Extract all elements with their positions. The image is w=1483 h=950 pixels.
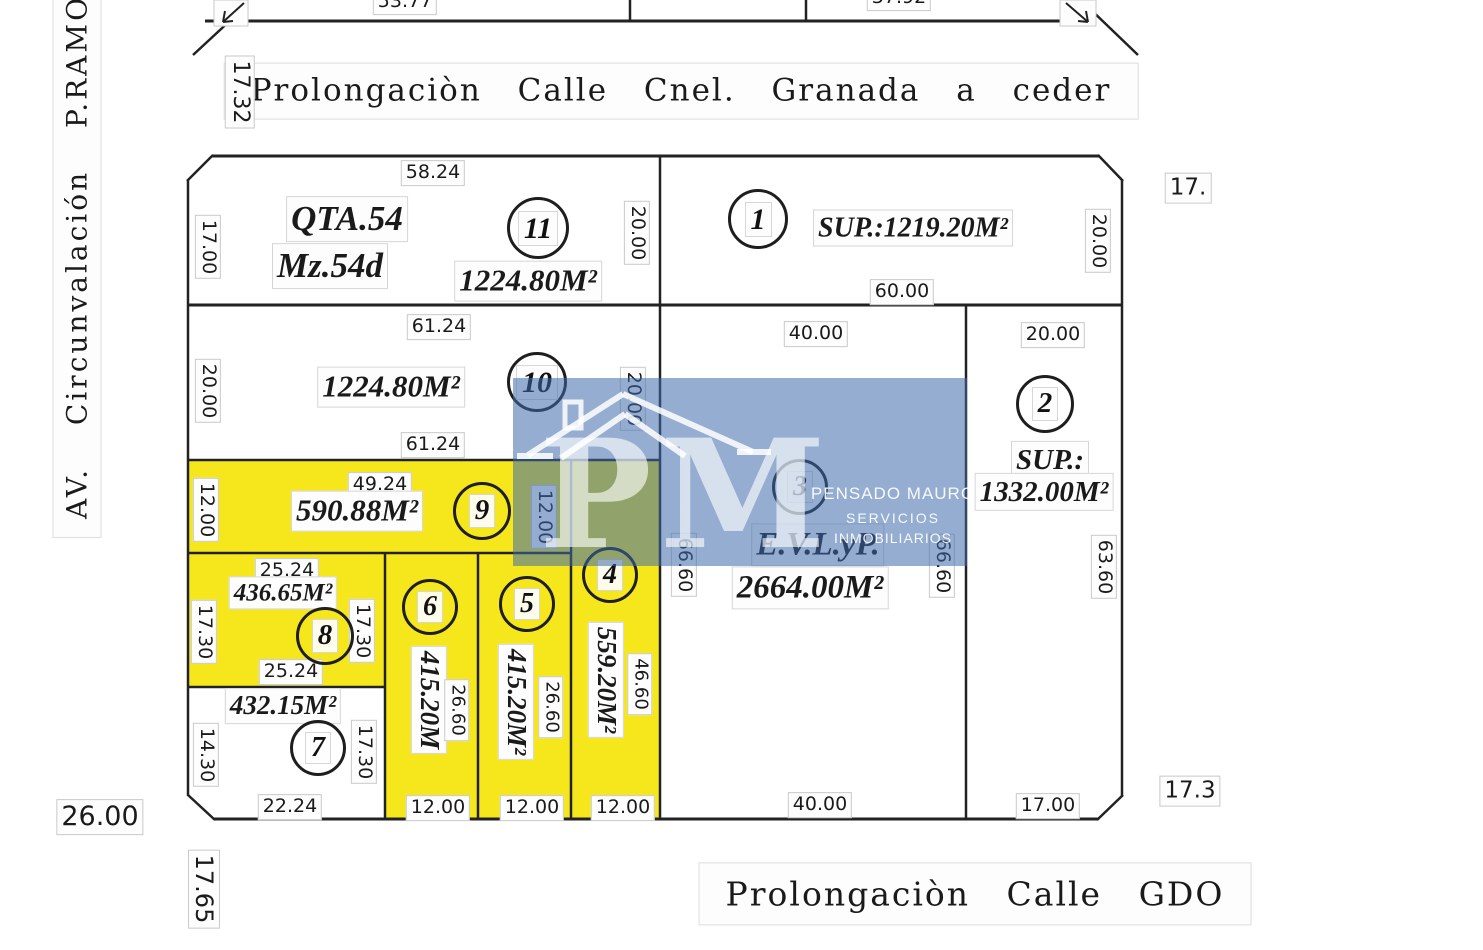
dim-17-65: 17.65 <box>188 850 220 929</box>
lot9-area: 590.88M² <box>291 491 423 532</box>
lot1-right-dim: 20.00 <box>1085 209 1111 273</box>
lot9-left-dim: 12.00 <box>193 478 219 542</box>
lot5-circle: 5 <box>499 576 555 632</box>
corner-mark-left <box>214 0 248 26</box>
lot8-area: 436.65M² <box>229 576 337 609</box>
block-manzana: Mz.54d <box>272 243 388 289</box>
watermark-company-name: PENSADO MAURO <box>805 484 981 504</box>
lot10-left-dim: 20.00 <box>195 359 221 423</box>
lot6-side-dim: 26.60 <box>445 679 470 741</box>
lot2-area: 1332.00M² <box>975 473 1114 511</box>
lot1-bottom-dim: 60.00 <box>870 279 934 305</box>
lot3-bottom-dim: 40.00 <box>788 792 852 818</box>
block-name: QTA.54 <box>286 196 408 242</box>
watermark: PM PENSADO MAURO SERVICIOS INMOBILIARIOS <box>513 378 967 566</box>
watermark-company-line3: INMOBILIARIOS <box>805 530 981 546</box>
top-strip-dim-left: 53.77 <box>373 0 437 15</box>
dim-17-32: 17.32 <box>225 56 255 129</box>
lot8-left-dim: 17.30 <box>191 600 217 664</box>
lot1-circle: 1 <box>728 189 788 249</box>
lot1-area: SUP.:1219.20M² <box>813 210 1013 247</box>
lot10-top-dim: 61.24 <box>407 314 471 340</box>
lot4-bottom-dim: 12.00 <box>591 795 655 821</box>
lot6-circle: 6 <box>402 579 458 635</box>
watermark-company: PENSADO MAURO SERVICIOS INMOBILIARIOS <box>805 484 981 546</box>
lot9-circle: 9 <box>453 482 511 540</box>
lot5-side-dim: 26.60 <box>539 676 564 738</box>
lot11-area: 1224.80M² <box>454 261 602 302</box>
lot7-bottom-dim: 22.24 <box>258 794 322 820</box>
survey-plan: Prolongaciòn Calle Cnel. Granada a ceder… <box>0 0 1483 950</box>
lot4-side-dim: 46.60 <box>628 653 653 715</box>
lot2-right-dim: 63.60 <box>1091 535 1117 599</box>
lot6-bottom-dim: 12.00 <box>406 795 470 821</box>
lot5-bottom-dim: 12.00 <box>500 795 564 821</box>
lot2-bottom-dim: 17.00 <box>1016 793 1080 819</box>
corner-mark-right <box>1060 0 1096 26</box>
street-left-label: AV. Circunvalación P.RAMO <box>53 0 102 538</box>
lot7-circle: 7 <box>290 720 346 776</box>
lot2-top-dim: 20.00 <box>1021 322 1085 348</box>
lot11-left-dim: 17.00 <box>195 215 221 279</box>
dim-right-top: 17. <box>1165 173 1212 204</box>
lot11-right-dim: 20.00 <box>624 201 650 265</box>
lot10-area: 1224.80M² <box>317 367 465 408</box>
lot7-area: 432.15M² <box>225 688 341 724</box>
lot7-left-dim: 14.30 <box>193 723 219 787</box>
lot7-right-dim: 17.30 <box>351 720 377 784</box>
lot11-circle: 11 <box>507 197 569 259</box>
lot6-area: 415.20M <box>411 646 447 754</box>
lot11-top-dim: 58.24 <box>401 160 465 186</box>
top-strip-dim-right: 37.92 <box>867 0 931 11</box>
dim-right-bottom: 17.3 <box>1159 776 1220 807</box>
lot3-top-dim: 40.00 <box>784 321 848 347</box>
watermark-company-line2: SERVICIOS <box>805 510 981 526</box>
lot8-circle: 8 <box>296 607 354 665</box>
street-bottom-label: Prolongaciòn Calle GDO <box>699 862 1252 925</box>
dim-bottom-left: 26.00 <box>56 799 143 835</box>
lot10-bottom-dim: 61.24 <box>401 432 465 458</box>
lot4-area: 559.20M² <box>588 622 624 738</box>
lot5-area: 415.20M² <box>498 644 534 760</box>
street-top-label: Prolongaciòn Calle Cnel. Granada a ceder <box>224 63 1139 120</box>
pm-logo: PM <box>539 420 834 570</box>
lot2-circle: 2 <box>1016 375 1074 433</box>
